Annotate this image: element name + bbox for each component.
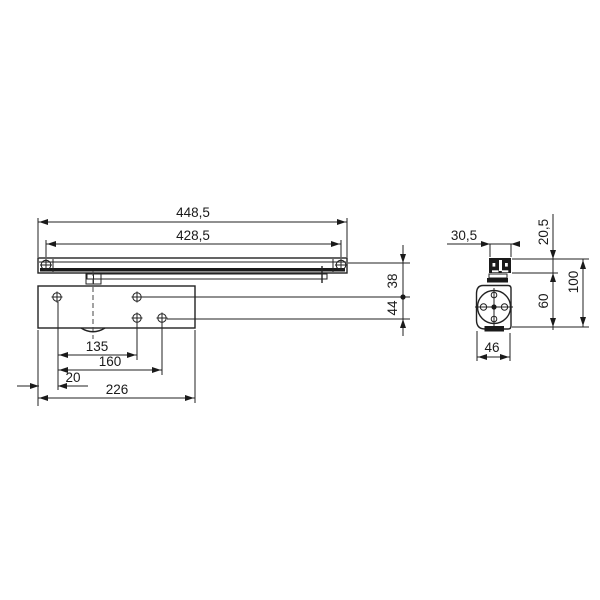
technical-drawing-page: 448,5 428,5 38 44 (0, 0, 600, 600)
dimension-rail-width: 30,5 (447, 228, 520, 257)
arrowhead-up (580, 260, 586, 269)
arrowhead-left (47, 241, 56, 247)
mounting-hole-3 (132, 313, 143, 324)
dim-label-100: 100 (566, 271, 581, 294)
dimension-dot (400, 294, 405, 299)
side-view: 30,5 20,5 60 100 46 (447, 214, 589, 361)
mounting-hole-1 (52, 292, 63, 303)
arrowhead-right (481, 241, 490, 247)
arrowhead-down (580, 317, 586, 326)
dim-label-135: 135 (86, 339, 109, 354)
arrowhead-right (152, 367, 161, 373)
front-view: 448,5 428,5 38 44 (17, 205, 410, 406)
arrowhead-down (550, 250, 556, 259)
dim-label-20: 20 (65, 370, 80, 385)
closer-body-outline (38, 286, 195, 328)
dim-label-20-5: 20,5 (536, 219, 551, 245)
arrowhead-down (550, 318, 556, 327)
mounting-hole-2 (132, 292, 143, 303)
dim-label-428: 428,5 (176, 228, 210, 243)
dim-label-60: 60 (536, 293, 551, 308)
rail-notch-left (493, 263, 496, 267)
mounting-hole-4 (157, 313, 168, 324)
arrowhead-down (400, 254, 406, 263)
body-foot-bar (485, 326, 505, 332)
dimension-height-group: 20,5 60 100 (512, 214, 589, 330)
slide-arm-bar (87, 274, 327, 279)
slide-rail-channel-bar (40, 268, 345, 272)
arrowhead-right (127, 352, 136, 358)
dim-label-46: 46 (484, 340, 499, 355)
dimension-body-width: 46 (477, 331, 510, 361)
dimension-fixing-centres: 428,5 (46, 228, 341, 257)
dim-label-44: 44 (385, 300, 400, 316)
rail-center-slot (499, 260, 502, 271)
dimension-bottom-group: 135 160 20 226 (17, 302, 195, 406)
rail-notch-right (505, 263, 508, 267)
arrowhead-left (59, 352, 68, 358)
arrowhead-right (337, 219, 346, 225)
arrowhead-right (331, 241, 340, 247)
rail-gap-left (492, 270, 499, 272)
arrowhead-left (39, 219, 48, 225)
dim-label-38: 38 (385, 273, 400, 288)
dim-label-30-5: 30,5 (451, 228, 477, 243)
arrowhead-left (39, 395, 48, 401)
mounting-plate-bar (487, 278, 508, 283)
dim-label-160: 160 (99, 354, 122, 369)
arrowhead-up (400, 319, 406, 328)
spindle-center-dot (491, 304, 496, 309)
dim-label-448: 448,5 (176, 205, 210, 220)
slider-plate-outline (489, 274, 507, 278)
arrowhead-left (511, 241, 520, 247)
rail-gap-right (502, 270, 509, 272)
dim-label-226: 226 (106, 382, 129, 397)
arrowhead-right (185, 395, 194, 401)
arrowhead-right (500, 354, 509, 360)
door-closer-dimension-drawing: 448,5 428,5 38 44 (0, 0, 600, 600)
arrowhead-up (550, 273, 556, 282)
rail-cross-section (489, 258, 511, 273)
